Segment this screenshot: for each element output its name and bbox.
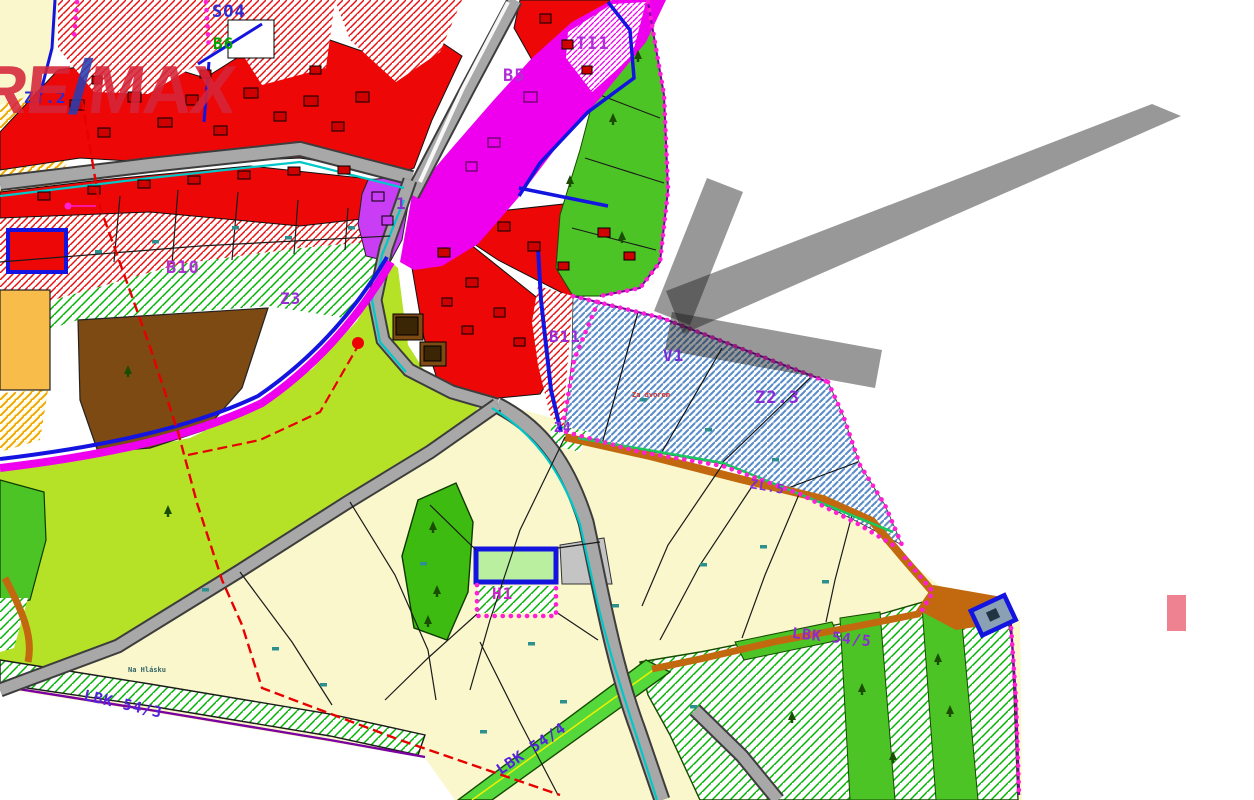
zone-label-z3: Z3: [280, 289, 301, 308]
zone-label-b11: B11: [549, 327, 581, 346]
zone-h1-parcel: [476, 549, 556, 582]
zone-label-1: 1: [396, 194, 407, 213]
zone-label-b10: B10: [166, 258, 200, 278]
power-node-dot: [352, 337, 364, 349]
remax-logo-max: MAX: [85, 52, 238, 128]
zone-label-z23: Z2.3: [755, 388, 800, 408]
zone-label-b5: B5: [503, 66, 525, 86]
zone-h1-hatch: [477, 586, 556, 613]
remax-logo-watermark: RE/MAX: [0, 44, 239, 131]
farm-building: [396, 317, 418, 335]
zone-label-z4: Z4: [554, 421, 572, 436]
orchard-parcel: [0, 290, 50, 390]
zoning-map-screenshot: SO4 B6 TI1 B5 ZT.2 1 B10 Z3 B11 V1 Z2.3 …: [0, 0, 1254, 800]
zone-label-so4: SO4: [212, 2, 246, 22]
highlight-rect-pink: [1167, 595, 1186, 631]
place-name-na-hlasku: Na Hlásku: [128, 666, 166, 674]
zone-label-v1: V1: [663, 346, 684, 365]
place-name-za-dvorem: Za dvorem: [632, 391, 670, 399]
highlight-parcel-blue-border: [8, 230, 66, 272]
farm-building-2: [424, 346, 441, 361]
zone-label-h1: H1: [492, 584, 513, 603]
zone-label-ti1: TI1: [576, 34, 610, 54]
remax-logo-re: RE: [0, 52, 74, 128]
